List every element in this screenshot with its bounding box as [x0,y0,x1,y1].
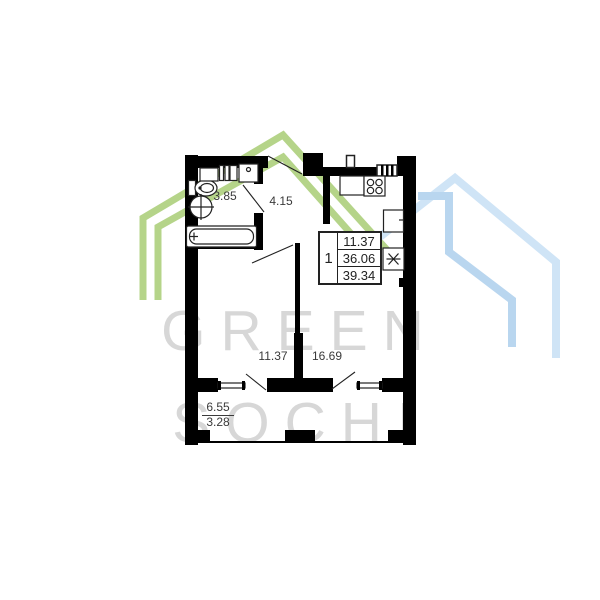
bottom-wall-center [267,378,333,392]
kitchen-living-area-label: 16.69 [305,350,349,363]
area-value: 36.06 [338,250,380,267]
living-area-value: 11.37 [338,233,380,250]
snowflake-icon [383,248,404,270]
balcony-pillar-right [388,430,416,443]
balcony-area-full: 6.55 [202,401,234,416]
balcony-area-reduced: 3.28 [202,416,234,429]
room-partition-thin [295,243,300,333]
top-wall-corner-left [303,153,323,176]
top-wall-corner-right [397,156,416,176]
balcony-door-left-swing [246,374,266,390]
balcony-pillar-center [285,430,315,443]
bottom-wall-right [382,378,403,392]
right-exterior-wall [403,156,416,445]
entrance-door-swing [268,156,302,174]
bathroom-area-label: 3.85 [205,190,245,203]
kitchen-top-wall [323,167,379,176]
bottom-wall-left [185,378,218,392]
stove-icon [364,176,385,196]
balcony-pillar-left [186,430,210,443]
bedroom-area-label: 11.37 [251,350,295,363]
hallway-kitchen-divider-wall [323,167,330,224]
right-wall-notch [399,278,403,287]
kitchen-sink-icon [340,176,364,195]
window-bedroom [218,381,245,390]
hallway-area-label: 4.15 [261,195,301,208]
vent-shaft-icon [347,156,355,168]
balcony-door-right-swing [332,372,355,389]
bathtub-icon [187,226,257,247]
floor-plan-drawing [0,0,600,600]
total-area-value: 39.34 [338,267,380,283]
apartment-info-table: 1 11.37 36.06 39.34 [318,231,382,285]
window-kitchen-top [377,165,397,176]
floor-plan-image: GREEN SOCHI [0,0,600,600]
room-partition-thick [294,333,303,380]
balcony-area-label: 6.55 3.28 [202,401,234,429]
fridge-icon [384,210,405,232]
vanity-icon [200,166,237,182]
washing-machine-icon [239,164,258,182]
rooms-count: 1 [320,233,338,283]
window-kitchen-living [357,381,382,390]
